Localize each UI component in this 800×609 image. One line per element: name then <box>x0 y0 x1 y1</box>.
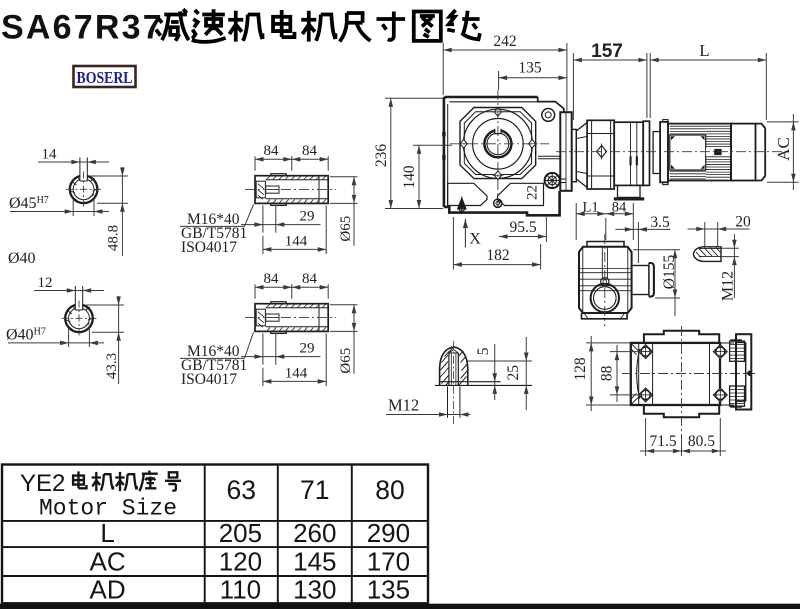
svg-text:260: 260 <box>293 518 336 548</box>
svg-text:22: 22 <box>525 185 541 200</box>
svg-text:Ø45H7: Ø45H7 <box>9 195 49 212</box>
svg-text:80.5: 80.5 <box>688 433 715 450</box>
svg-text:ISO4017: ISO4017 <box>181 371 237 388</box>
svg-text:144: 144 <box>285 365 308 381</box>
svg-text:145: 145 <box>293 546 336 576</box>
svg-text:Ø65: Ø65 <box>338 216 354 242</box>
svg-text:3.5: 3.5 <box>650 214 670 231</box>
svg-text:L1: L1 <box>583 200 599 216</box>
svg-text:140: 140 <box>401 165 418 189</box>
svg-text:M12: M12 <box>720 271 737 301</box>
svg-text:135: 135 <box>367 575 410 605</box>
svg-text:Ø40: Ø40 <box>8 250 36 267</box>
svg-text:84: 84 <box>264 143 280 159</box>
svg-text:14: 14 <box>42 147 58 163</box>
svg-text:170: 170 <box>367 546 410 576</box>
svg-text:Ø65: Ø65 <box>338 348 354 374</box>
svg-text:29: 29 <box>300 209 315 225</box>
svg-text:242: 242 <box>493 33 516 50</box>
svg-text:71.5: 71.5 <box>649 433 676 450</box>
svg-text:L: L <box>100 518 114 548</box>
svg-text:95.5: 95.5 <box>509 219 536 236</box>
svg-text:BOSERL: BOSERL <box>77 68 133 87</box>
svg-text:43.3: 43.3 <box>104 353 120 379</box>
svg-text:AC: AC <box>90 546 126 576</box>
svg-text:12: 12 <box>38 275 53 291</box>
svg-text:5: 5 <box>475 347 492 355</box>
svg-text:130: 130 <box>293 575 336 605</box>
svg-text:84: 84 <box>264 271 280 287</box>
svg-text:182: 182 <box>486 247 509 264</box>
svg-text:290: 290 <box>367 518 410 548</box>
svg-text:ISO4017: ISO4017 <box>181 239 237 256</box>
svg-text:AC: AC <box>774 137 793 161</box>
svg-text:29: 29 <box>300 341 315 357</box>
svg-text:SA67R37: SA67R37 <box>1 9 164 47</box>
svg-text:84: 84 <box>302 271 318 287</box>
svg-text:L: L <box>699 41 709 60</box>
svg-text:48.8: 48.8 <box>106 225 122 251</box>
svg-text:YE2: YE2 <box>20 470 65 497</box>
svg-text:M12: M12 <box>388 396 419 415</box>
svg-text:80: 80 <box>375 475 404 505</box>
svg-text:84: 84 <box>612 200 627 216</box>
svg-text:144: 144 <box>285 233 308 249</box>
svg-text:205: 205 <box>219 518 262 548</box>
svg-text:157: 157 <box>591 41 623 62</box>
svg-text:25: 25 <box>505 365 522 381</box>
svg-text:AD: AD <box>90 575 126 605</box>
svg-text:71: 71 <box>300 475 329 505</box>
svg-text:X: X <box>469 231 481 248</box>
svg-text:63: 63 <box>226 475 255 505</box>
svg-text:236: 236 <box>373 144 390 168</box>
svg-text:Ø155: Ø155 <box>661 255 678 290</box>
svg-text:84: 84 <box>302 143 318 159</box>
svg-text:Ø40H7: Ø40H7 <box>6 327 46 344</box>
svg-text:110: 110 <box>220 575 261 605</box>
svg-text:20: 20 <box>735 214 751 231</box>
svg-text:135: 135 <box>518 60 542 77</box>
svg-text:128: 128 <box>572 357 589 381</box>
svg-text:120: 120 <box>219 546 262 576</box>
svg-text:88: 88 <box>599 365 616 381</box>
